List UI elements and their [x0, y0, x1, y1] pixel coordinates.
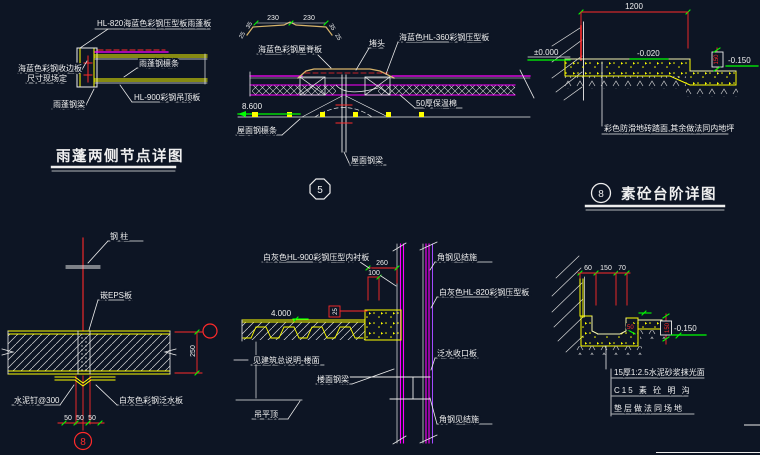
gutter-dim-50: 50	[627, 325, 634, 331]
ridge-dim-230a: 230	[267, 15, 279, 22]
ridge-purlin-label: 屋面钢檩条	[237, 125, 277, 135]
floor-elevation: 4.000	[271, 309, 292, 318]
canopy-panel-label: HL-820海蓝色彩钢压型板雨蓬板	[97, 18, 211, 28]
cad-canvas: HL-820海蓝色彩钢压型板雨蓬板 海蓝色彩钢收边板 尺寸现场定 雨蓬钢檩条 H…	[0, 0, 760, 455]
canopy-detail-title: 雨蓬两侧节点详图	[56, 147, 184, 165]
canopy-edge-label-1: 海蓝色彩钢收边板	[18, 63, 82, 73]
floor-dim-260: 260	[376, 260, 388, 267]
step-bubble-number: 8	[598, 189, 604, 200]
step-elev-bottom: -0.150	[728, 56, 751, 65]
joint-dim-250: 250	[190, 345, 197, 357]
floor-dim-100: 100	[368, 270, 380, 277]
joint-nail-label: 水泥钉@300	[14, 395, 60, 405]
ridge-end-plug-label: 堵头	[369, 38, 385, 48]
gutter-dim-60: 60	[584, 265, 592, 272]
ridge-roof-panel-label: 海蓝色HL-360彩钢压型板	[399, 32, 489, 42]
ridge-insulation-label: 50厚保温棉	[416, 98, 457, 108]
cad-drawing-sheet: HL-820海蓝色彩钢压型板雨蓬板 海蓝色彩钢收边板 尺寸现场定 雨蓬钢檩条 H…	[0, 0, 760, 455]
gutter-note-2: C15 素 砼 明 沟	[614, 385, 692, 395]
gutter-elevation: -0.150	[674, 324, 697, 333]
canopy-ceiling-label: HL-900彩钢吊顶板	[134, 92, 200, 102]
joint-flashing-label: 白灰色彩钢泛水板	[119, 395, 183, 405]
step-note: 彩色防滑地砖踏面,其余做法同内地坪	[604, 123, 734, 133]
ridge-dim-230b: 230	[303, 15, 315, 22]
floor-angle-top-label: 角钢见结施	[437, 252, 477, 262]
ridge-beam-label: 屋面钢梁	[351, 155, 383, 165]
canopy-edge-label-2: 尺寸现场定	[27, 73, 67, 83]
gutter-dim-70: 70	[618, 265, 626, 272]
floor-note-label: 见建筑总说明-楼面	[253, 355, 320, 365]
joint-dim-50b: 50	[76, 415, 84, 422]
step-elev-top: -0.020	[637, 49, 660, 58]
floor-beam-label: 楼面钢梁	[317, 374, 349, 384]
floor-liner-label: 白灰色HL-900彩钢压型内衬板	[263, 252, 369, 262]
joint-bubble-number: 8	[80, 437, 86, 448]
joint-dim-50a: 50	[64, 415, 72, 422]
floor-angle-bottom-label: 角钢见结施	[439, 414, 479, 424]
step-detail-title: 素砼台阶详图	[621, 185, 717, 203]
step-dim-1200: 1200	[625, 2, 643, 11]
floor-closure-label: 泛水收口板	[437, 348, 477, 358]
joint-column-label: 钢 柱	[110, 231, 128, 241]
floor-ceiling-label: 吊平顶	[254, 410, 278, 419]
gutter-note-1: 15厚1:2.5水泥砂浆抹光面	[614, 367, 705, 377]
ridge-cap-label: 海蓝色彩钢屋脊板	[258, 44, 322, 54]
canopy-purlin-label: 雨蓬钢檩条	[139, 58, 179, 68]
ridge-elevation: 8.600	[242, 102, 263, 111]
step-dim-150: 150	[714, 54, 720, 65]
step-elev-zero: ±0.000	[534, 48, 559, 57]
gutter-dim-150: 150	[600, 265, 612, 272]
joint-eps-label: 嵌EPS板	[100, 290, 132, 300]
joint-dim-50c: 50	[88, 415, 96, 422]
gutter-note-3: 垫层做法同场地	[614, 403, 684, 413]
canopy-beam-label: 雨蓬钢梁	[53, 99, 85, 109]
floor-dim-25: 25	[333, 308, 339, 315]
ridge-bubble-number: 5	[317, 185, 323, 196]
gutter-dim-depth: 150	[665, 322, 671, 333]
floor-wall-panel-label: 白灰色HL-820彩钢压型板	[439, 287, 529, 297]
